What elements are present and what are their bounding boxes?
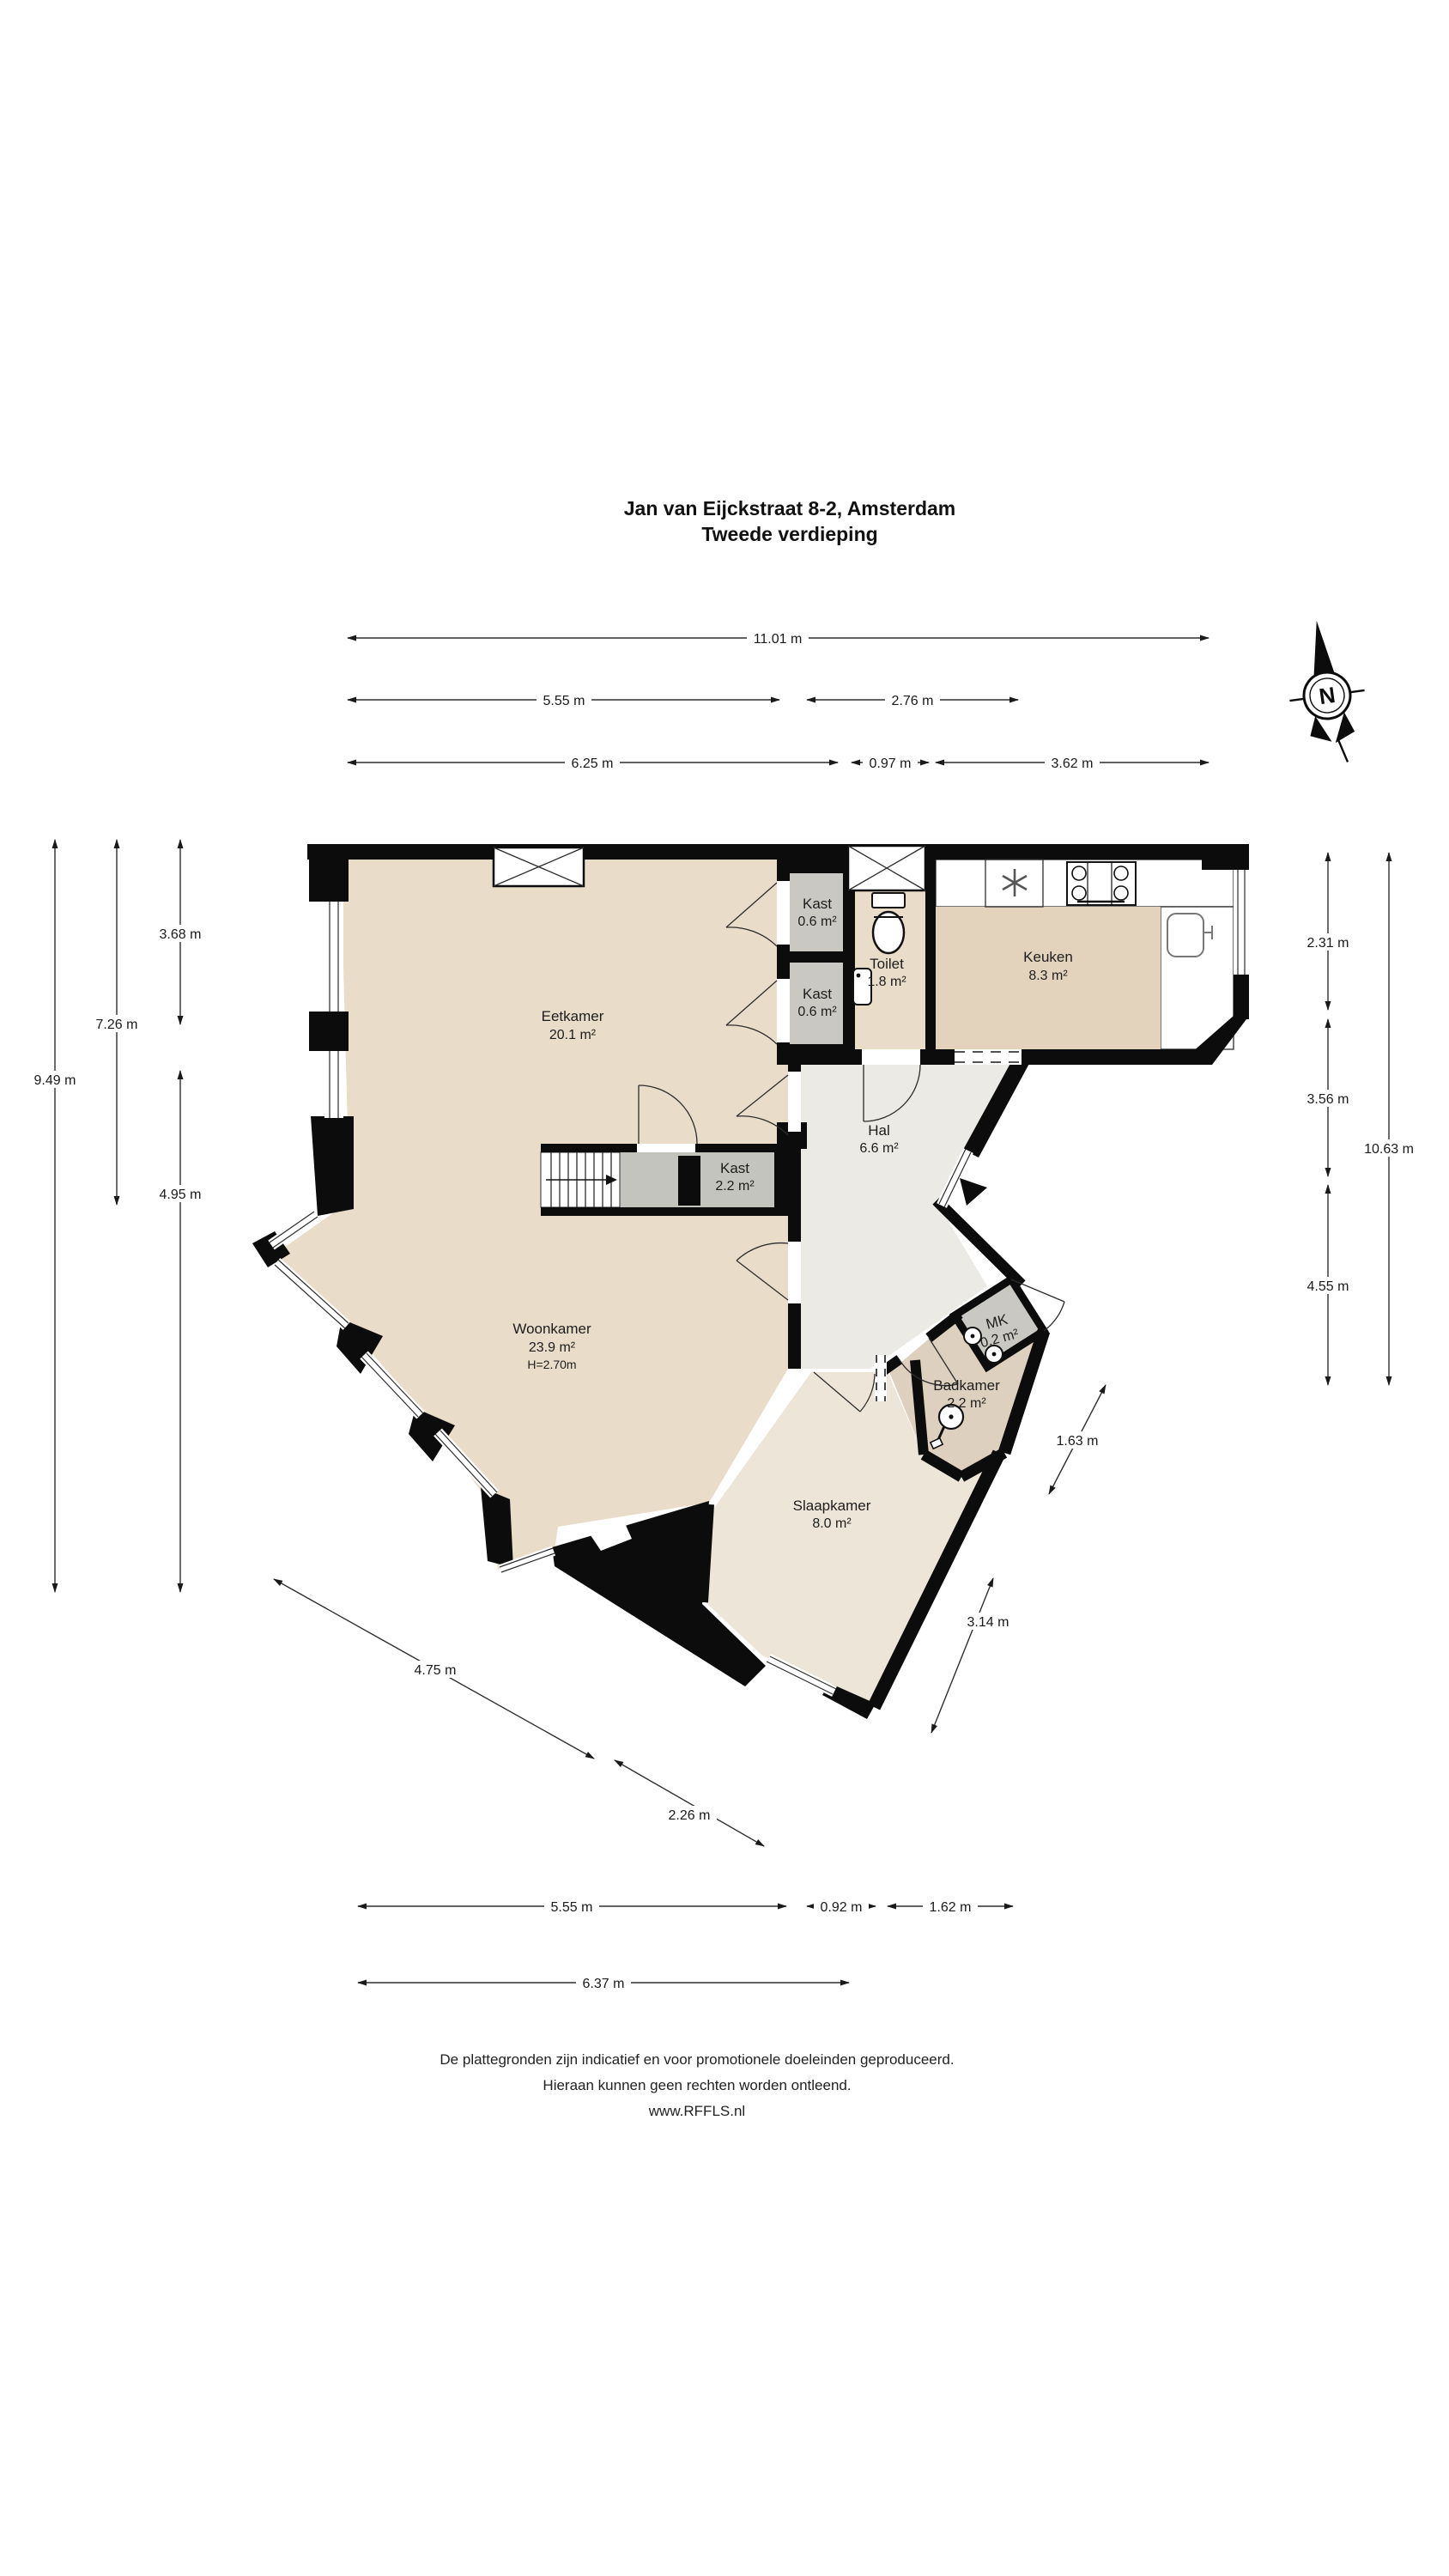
title-address: Jan van Eijckstraat 8-2, Amsterdam xyxy=(624,497,956,519)
room-kast-onder xyxy=(790,963,843,1044)
svg-text:5.55 m: 5.55 m xyxy=(543,694,585,708)
svg-text:4.95 m: 4.95 m xyxy=(160,1188,202,1202)
dim-right-356: 3.56 m xyxy=(1300,1019,1355,1176)
window-keuken-right xyxy=(1234,870,1249,975)
label-badkamer: Badkamer xyxy=(933,1377,1000,1394)
svg-text:10.63 m: 10.63 m xyxy=(1364,1142,1414,1157)
dim-left-726: 7.26 m xyxy=(89,840,144,1205)
dim-top-097: 0.97 m xyxy=(852,754,929,771)
dim-right-455: 4.55 m xyxy=(1300,1185,1355,1385)
svg-text:0.92 m: 0.92 m xyxy=(821,1900,863,1915)
shaft-icon xyxy=(494,848,584,886)
title-floor: Tweede verdieping xyxy=(701,523,877,545)
svg-text:11.01 m: 11.01 m xyxy=(754,632,803,647)
label-slaapkamer-area: 8.0 m² xyxy=(812,1516,852,1531)
compass-icon: N xyxy=(1279,616,1374,769)
label-keuken: Keuken xyxy=(1023,949,1073,965)
svg-text:7.26 m: 7.26 m xyxy=(96,1018,138,1032)
svg-text:4.55 m: 4.55 m xyxy=(1307,1279,1349,1294)
keuken-opening-dashed xyxy=(955,1049,1022,1065)
disclaimer-line-1: De plattegronden zijn indicatief en voor… xyxy=(440,2051,954,2068)
label-keuken-area: 8.3 m² xyxy=(1028,969,1068,983)
label-woonkamer-area: 23.9 m² xyxy=(529,1340,576,1355)
label-kast-boven-area: 0.6 m² xyxy=(797,914,837,929)
room-kast-boven xyxy=(790,873,843,951)
svg-text:1.62 m: 1.62 m xyxy=(930,1900,972,1915)
disclaimer: De plattegronden zijn indicatief en voor… xyxy=(440,2051,954,2119)
svg-text:6.25 m: 6.25 m xyxy=(572,756,614,771)
dim-left-949: 9.49 m xyxy=(27,840,82,1592)
dim-bottom-637: 6.37 m xyxy=(358,1974,849,1991)
dim-diag-314: 3.14 m xyxy=(931,1578,1016,1733)
svg-text:3.62 m: 3.62 m xyxy=(1052,756,1094,771)
room-floors xyxy=(273,860,1234,1707)
dim-diag-475: 4.75 m xyxy=(274,1579,594,1759)
label-kast-boven: Kast xyxy=(803,896,832,912)
dim-diag-226: 2.26 m xyxy=(615,1760,764,1846)
svg-text:5.55 m: 5.55 m xyxy=(551,1900,593,1915)
svg-text:2.76 m: 2.76 m xyxy=(892,694,934,708)
label-badkamer-area: 2.2 m² xyxy=(947,1396,986,1411)
floorplan-svg: Jan van Eijckstraat 8-2, Amsterdam Tweed… xyxy=(0,0,1449,2576)
svg-text:0.97 m: 0.97 m xyxy=(870,756,912,771)
dim-left-368: 3.68 m xyxy=(153,840,208,1024)
label-kast-trap-area: 2.2 m² xyxy=(715,1179,755,1194)
dim-left-495: 4.95 m xyxy=(153,1071,208,1592)
floorplan-page: Jan van Eijckstraat 8-2, Amsterdam Tweed… xyxy=(0,0,1449,2576)
label-toilet-area: 1.8 m² xyxy=(867,975,906,989)
dim-top-362: 3.62 m xyxy=(936,754,1209,771)
dim-right-1063: 10.63 m xyxy=(1358,853,1420,1385)
svg-text:3.14 m: 3.14 m xyxy=(967,1615,1009,1630)
dim-bottom-555: 5.55 m xyxy=(358,1898,786,1915)
svg-text:2.26 m: 2.26 m xyxy=(669,1808,711,1823)
room-keuken-counter-top xyxy=(936,860,1234,907)
entrance-arrow-icon xyxy=(960,1178,987,1206)
label-hal-area: 6.6 m² xyxy=(859,1141,899,1156)
label-kast-onder: Kast xyxy=(803,986,832,1002)
page-title: Jan van Eijckstraat 8-2, Amsterdam Tweed… xyxy=(624,497,956,545)
dim-top-1101: 11.01 m xyxy=(348,629,1209,647)
label-eetkamer: Eetkamer xyxy=(542,1008,604,1024)
dim-top-276: 2.76 m xyxy=(807,691,1018,708)
toilet-icon xyxy=(872,893,905,953)
disclaimer-line-3: www.RFFLS.nl xyxy=(648,2103,745,2119)
window-eetkamer-left-1 xyxy=(324,902,343,1012)
label-toilet: Toilet xyxy=(870,956,904,972)
label-woonkamer-height: H=2.70m xyxy=(527,1358,576,1371)
window-eetkamer-left-2 xyxy=(324,1051,343,1118)
label-kast-trap: Kast xyxy=(720,1160,749,1176)
svg-text:2.31 m: 2.31 m xyxy=(1307,936,1349,951)
dim-bottom-162: 1.62 m xyxy=(888,1898,1013,1915)
svg-text:9.49 m: 9.49 m xyxy=(34,1073,76,1088)
disclaimer-line-2: Hieraan kunnen geen rechten worden ontle… xyxy=(543,2077,851,2093)
label-hal: Hal xyxy=(868,1122,890,1139)
shaft-icon xyxy=(848,846,925,890)
svg-text:3.56 m: 3.56 m xyxy=(1307,1092,1349,1107)
svg-text:4.75 m: 4.75 m xyxy=(415,1663,457,1678)
dim-top-555: 5.55 m xyxy=(348,691,779,708)
label-slaapkamer: Slaapkamer xyxy=(793,1498,871,1514)
label-eetkamer-area: 20.1 m² xyxy=(549,1028,597,1042)
svg-text:6.37 m: 6.37 m xyxy=(583,1977,625,1991)
hal-slaapkamer-opening-dashed xyxy=(875,1355,887,1401)
svg-text:3.68 m: 3.68 m xyxy=(160,927,202,942)
svg-text:1.63 m: 1.63 m xyxy=(1057,1434,1099,1449)
dim-right-231: 2.31 m xyxy=(1300,853,1355,1010)
dim-top-625: 6.25 m xyxy=(348,754,838,771)
label-kast-onder-area: 0.6 m² xyxy=(797,1005,837,1019)
label-woonkamer: Woonkamer xyxy=(512,1321,591,1337)
dim-bottom-092: 0.92 m xyxy=(807,1898,876,1915)
dim-diag-163: 1.63 m xyxy=(1049,1385,1106,1494)
